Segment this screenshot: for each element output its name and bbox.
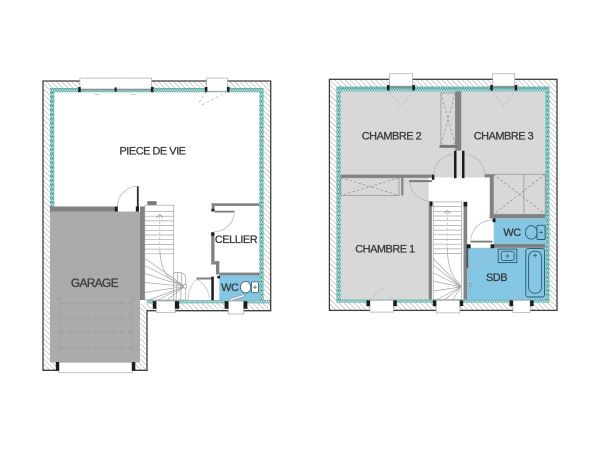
- svg-text:CELLIER: CELLIER: [215, 234, 258, 246]
- svg-text:SDB: SDB: [486, 272, 507, 284]
- svg-text:CHAMBRE 2: CHAMBRE 2: [362, 130, 422, 142]
- svg-text:CHAMBRE 1: CHAMBRE 1: [355, 244, 415, 256]
- svg-text:CHAMBRE 3: CHAMBRE 3: [474, 130, 534, 142]
- svg-text:WC: WC: [503, 227, 521, 239]
- svg-text:GARAGE: GARAGE: [71, 276, 119, 290]
- svg-text:WC: WC: [221, 282, 239, 294]
- svg-text:PIECE DE VIE: PIECE DE VIE: [119, 146, 185, 158]
